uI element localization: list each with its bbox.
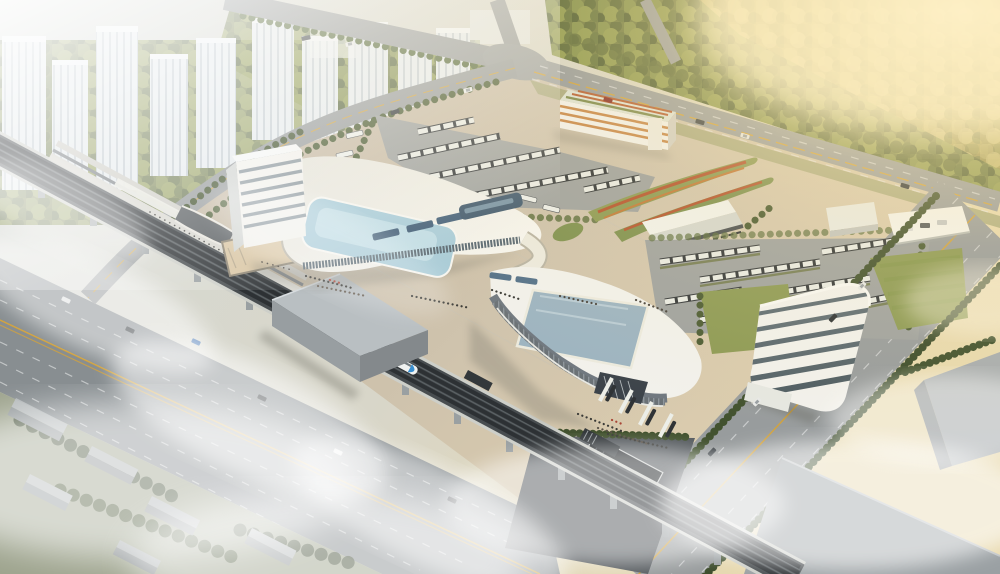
rendering-canvas: [0, 0, 1000, 574]
architectural-rendering: [0, 0, 1000, 574]
